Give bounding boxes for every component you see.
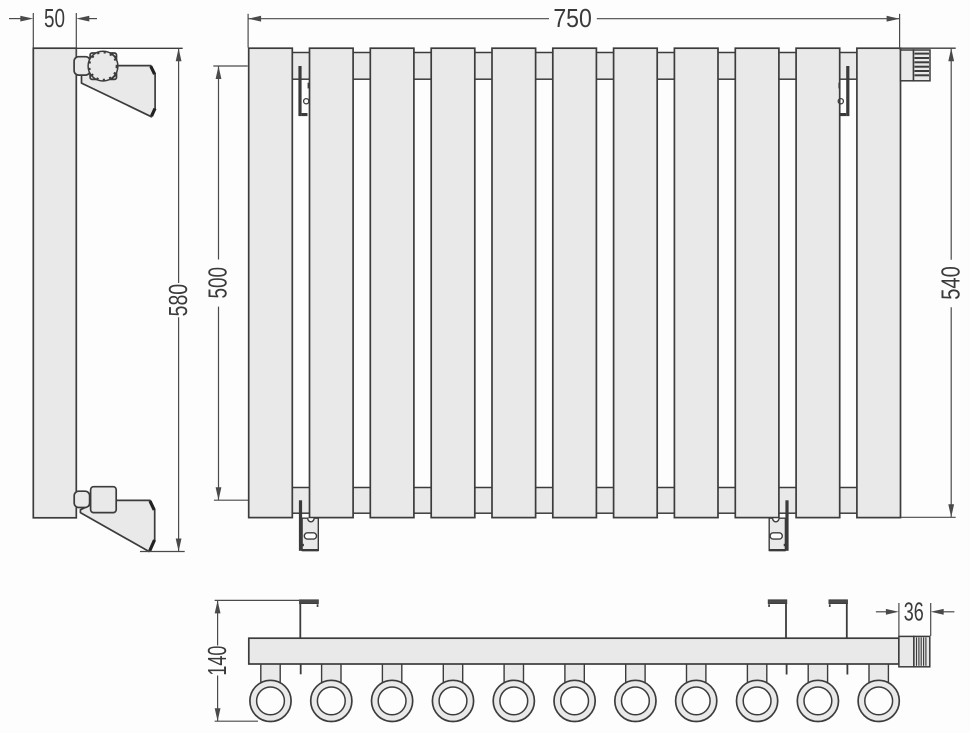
svg-text:140: 140 [202,646,232,676]
svg-text:540: 540 [935,266,965,300]
svg-text:50: 50 [44,3,65,33]
svg-text:750: 750 [553,3,592,33]
svg-text:500: 500 [202,267,232,299]
svg-text:36: 36 [904,596,924,626]
svg-text:580: 580 [163,284,193,317]
